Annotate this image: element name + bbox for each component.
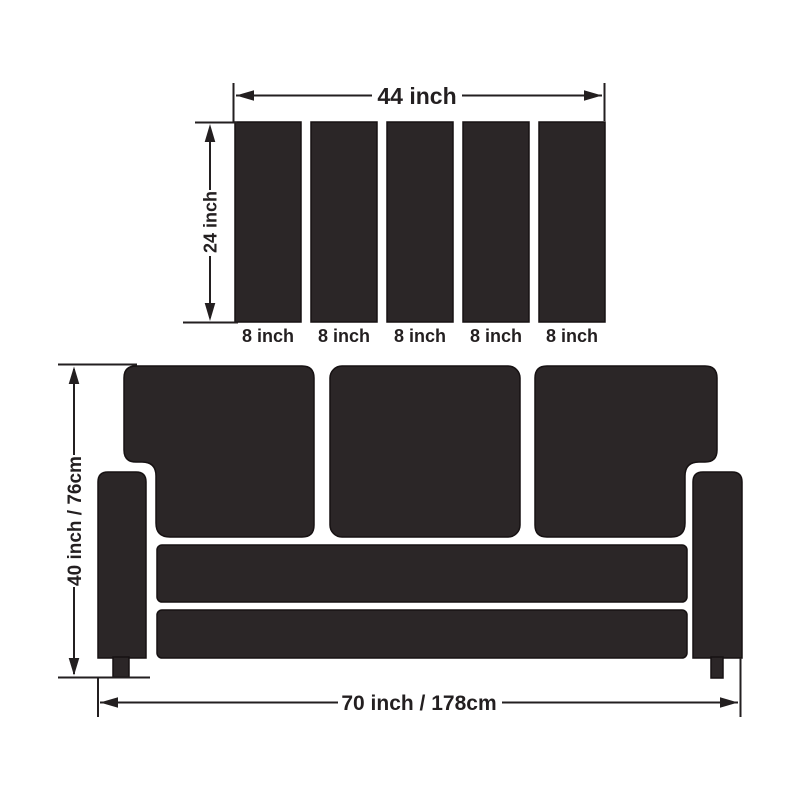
panel-2-width-label: 8 inch <box>318 326 370 346</box>
arrowhead-down-icon <box>69 658 80 676</box>
sofa-width-label: 70 inch / 178cm <box>341 692 496 715</box>
arrowhead-left-icon <box>100 697 118 708</box>
cover-panel-5 <box>539 122 605 322</box>
panel-3-width-label: 8 inch <box>394 326 446 346</box>
cover-panel-1 <box>235 122 301 322</box>
base-band <box>157 610 687 658</box>
panel-width-label: 44 inch <box>377 83 456 109</box>
panel-width-dimension: 44 inch <box>234 83 605 122</box>
arrowhead-right-icon <box>720 697 738 708</box>
panel-1-width-label: 8 inch <box>242 326 294 346</box>
sofa-height-label: 40 inch / 76cm <box>65 456 86 586</box>
sofa-leg-right <box>711 657 723 678</box>
arrowhead-left-icon <box>236 90 254 101</box>
sofa-width-dimension: 70 inch / 178cm <box>98 658 741 717</box>
back-cushion-center <box>330 366 520 537</box>
seat-band <box>157 545 687 602</box>
diagram-canvas: 44 inch 24 inch 8 inch 8 inch 8 inch 8 i… <box>0 0 800 800</box>
product-dimension-diagram: 44 inch 24 inch 8 inch 8 inch 8 inch 8 i… <box>0 0 800 800</box>
cover-panel-3 <box>387 122 453 322</box>
back-cushion-right <box>535 366 717 537</box>
sofa-leg-left <box>113 657 129 677</box>
arrowhead-right-icon <box>584 90 602 101</box>
panel-5-width-label: 8 inch <box>546 326 598 346</box>
arrowhead-up-icon <box>69 367 80 385</box>
armrest-left <box>98 472 146 658</box>
back-cushion-left <box>124 366 314 537</box>
cover-panel-4 <box>463 122 529 322</box>
panel-height-label: 24 inch <box>201 191 221 253</box>
panel-set <box>235 122 605 322</box>
panel-height-dimension: 24 inch <box>183 123 238 323</box>
cover-panel-2 <box>311 122 377 322</box>
sofa-silhouette <box>98 366 742 678</box>
armrest-right <box>693 472 742 658</box>
panel-4-width-label: 8 inch <box>470 326 522 346</box>
arrowhead-up-icon <box>205 124 216 142</box>
arrowhead-down-icon <box>205 303 216 321</box>
panel-width-labels: 8 inch 8 inch 8 inch 8 inch 8 inch <box>242 326 598 346</box>
